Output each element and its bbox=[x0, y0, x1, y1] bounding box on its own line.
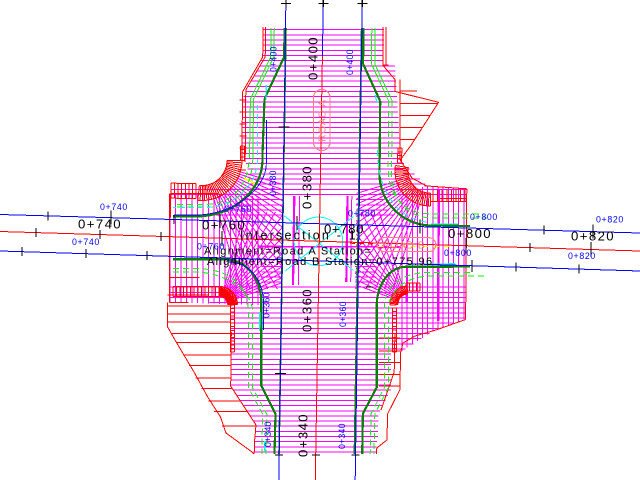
svg-text:0+360: 0+360 bbox=[300, 288, 315, 332]
svg-text:0+740: 0+740 bbox=[100, 202, 128, 212]
svg-text:ROAD A: ROAD A bbox=[317, 99, 329, 142]
svg-text:Intersection - 1: Intersection - 1 bbox=[240, 229, 358, 243]
svg-text:0+380: 0+380 bbox=[300, 165, 315, 209]
svg-text:0+360: 0+360 bbox=[262, 292, 272, 318]
svg-text:0+360: 0+360 bbox=[338, 301, 348, 327]
svg-text:0+740: 0+740 bbox=[72, 237, 100, 247]
svg-text:0+380: 0+380 bbox=[268, 170, 278, 196]
svg-text:0+740: 0+740 bbox=[78, 217, 122, 232]
svg-text:0+340: 0+340 bbox=[296, 413, 311, 457]
svg-text:0+820: 0+820 bbox=[571, 229, 615, 244]
svg-text:0+340: 0+340 bbox=[263, 421, 273, 447]
svg-text:Alignment=Road B Station=0+77: Alignment=Road B Station=0+775.96 bbox=[207, 256, 434, 268]
svg-text:ROAD B: ROAD B bbox=[382, 240, 425, 252]
svg-text:0+800: 0+800 bbox=[470, 212, 498, 222]
svg-text:0+800: 0+800 bbox=[448, 226, 492, 241]
svg-text:0+400: 0+400 bbox=[269, 46, 279, 72]
svg-text:0+820: 0+820 bbox=[568, 251, 596, 261]
svg-text:0+780: 0+780 bbox=[348, 209, 376, 219]
svg-text:0+760: 0+760 bbox=[197, 242, 225, 252]
svg-text:0+400: 0+400 bbox=[306, 36, 321, 80]
svg-text:0+760: 0+760 bbox=[224, 204, 252, 214]
svg-text:0+820: 0+820 bbox=[596, 215, 624, 225]
svg-text:0+400: 0+400 bbox=[345, 49, 355, 75]
svg-text:0+800: 0+800 bbox=[444, 248, 472, 258]
svg-text:0+340: 0+340 bbox=[337, 423, 347, 449]
